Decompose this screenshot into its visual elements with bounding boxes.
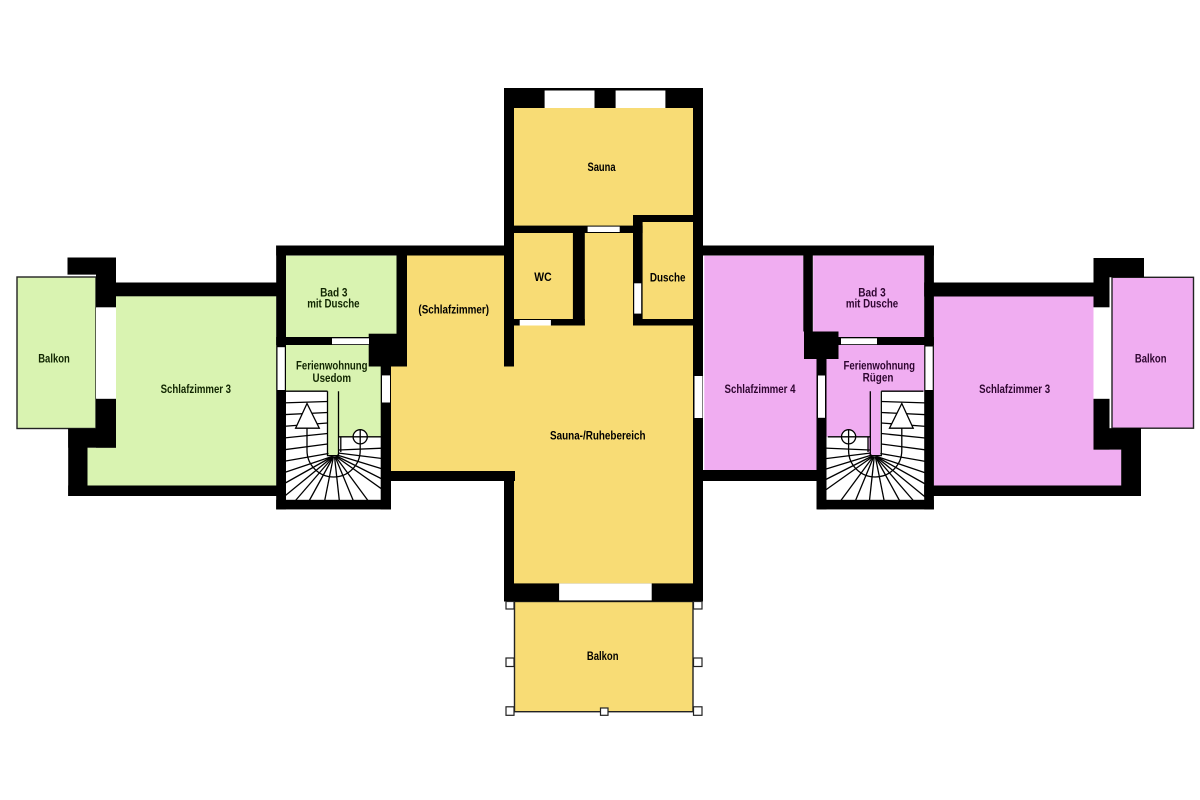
svg-text:Balkon: Balkon (38, 352, 70, 365)
svg-text:Sauna-/Ruhebereich: Sauna-/Ruhebereich (550, 430, 646, 443)
svg-text:Balkon: Balkon (1135, 352, 1167, 365)
svg-text:Schlafzimmer 4: Schlafzimmer 4 (725, 383, 796, 396)
svg-text:Sauna: Sauna (587, 161, 616, 174)
svg-text:Ferienwohnung: Ferienwohnung (296, 360, 367, 373)
svg-text:mit Dusche: mit Dusche (846, 298, 898, 311)
svg-text:WC: WC (534, 271, 551, 284)
svg-text:Dusche: Dusche (650, 271, 686, 284)
svg-text:Usedom: Usedom (313, 372, 352, 385)
svg-text:Balkon: Balkon (587, 650, 619, 663)
svg-text:Schlafzimmer 3: Schlafzimmer 3 (979, 383, 1050, 396)
svg-text:Rügen: Rügen (863, 372, 894, 385)
svg-text:mit Dusche: mit Dusche (307, 298, 359, 311)
svg-text:(Schlafzimmer): (Schlafzimmer) (418, 304, 489, 317)
svg-text:Schlafzimmer 3: Schlafzimmer 3 (161, 383, 231, 396)
